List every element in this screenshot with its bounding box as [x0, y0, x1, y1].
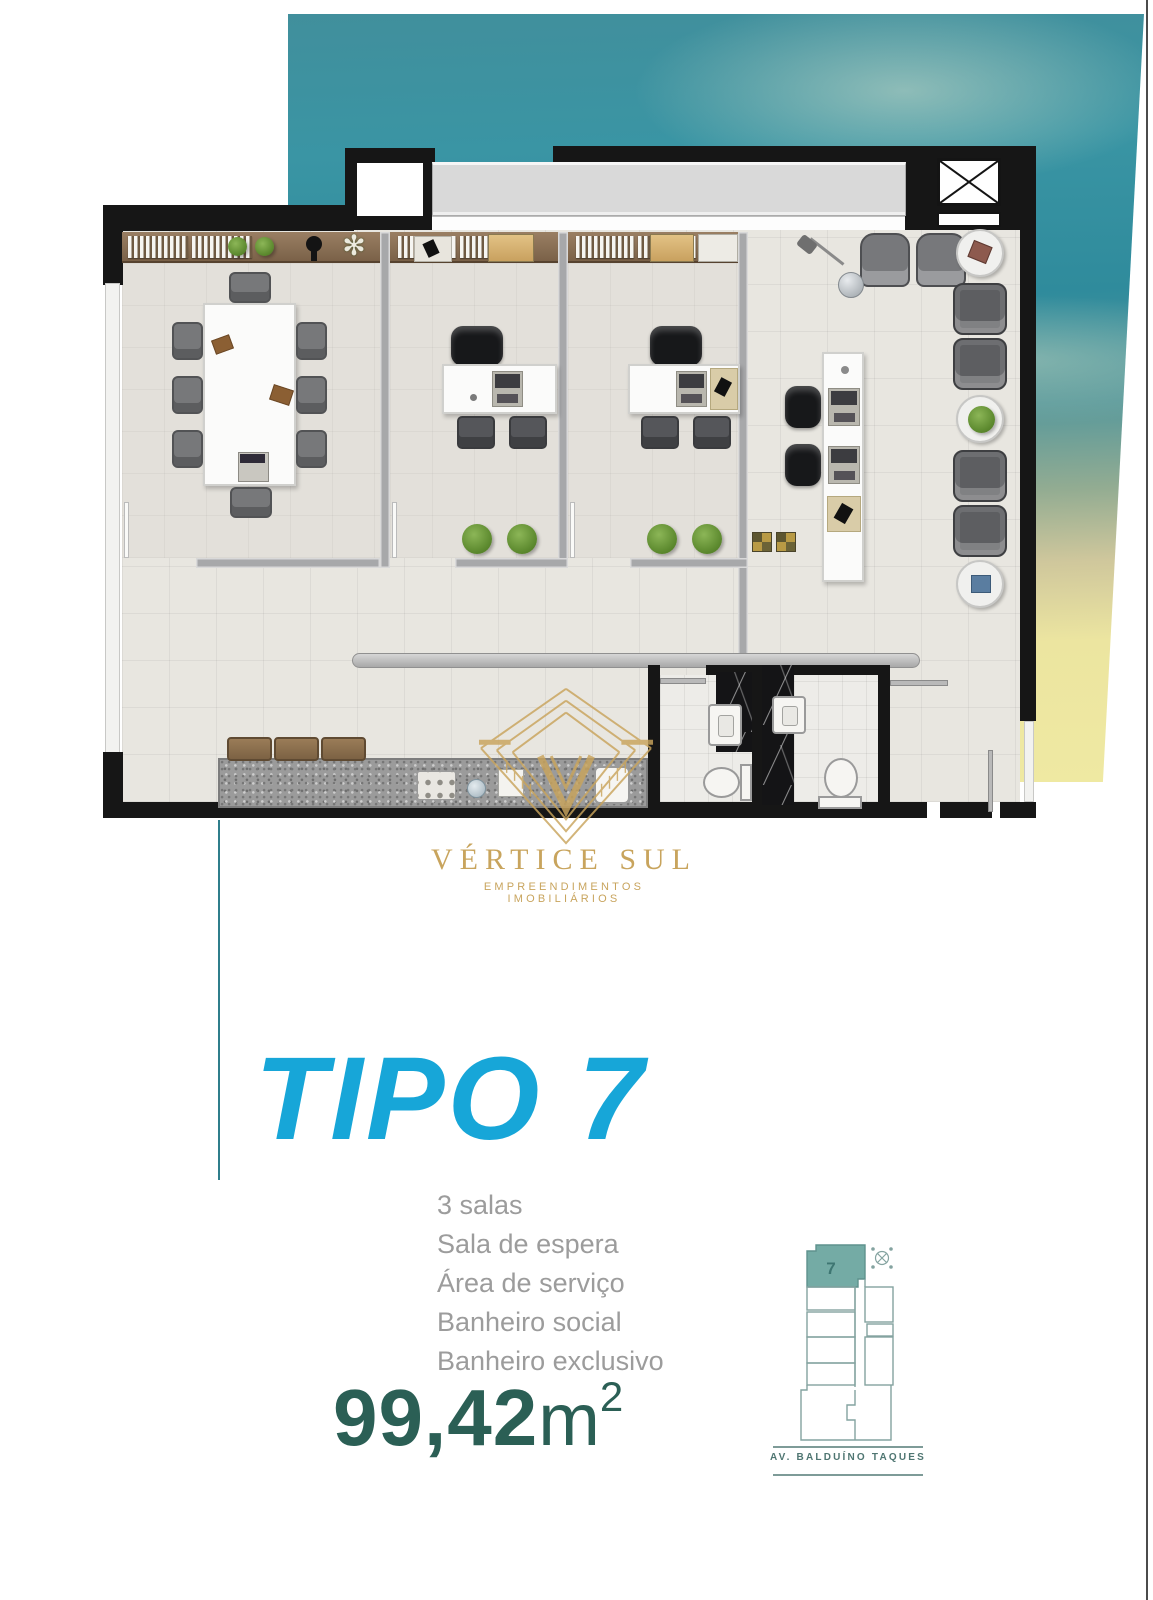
street-line: [773, 1474, 923, 1476]
flyer-page: ✻: [0, 0, 1153, 1600]
street-label: AV. BALDUÍNO TAQUES: [763, 1452, 933, 1463]
feature-item: Sala de espera: [437, 1225, 664, 1264]
street-line: [773, 1446, 923, 1448]
area-exponent: 2: [600, 1373, 623, 1421]
feature-item: Área de serviço: [437, 1264, 664, 1303]
unit-area: 99,42m2: [333, 1372, 623, 1464]
unit-number-label: 7: [826, 1259, 835, 1278]
accent-divider-line: [218, 820, 220, 1180]
unit-7-highlight: [807, 1245, 865, 1287]
logo-name: VÉRTICE SUL: [428, 843, 700, 877]
logo-tagline: EMPREENDIMENTOS IMOBILIÁRIOS: [428, 881, 700, 905]
area-unit: m: [538, 1377, 600, 1462]
building-key-plan: 7: [768, 1238, 908, 1444]
feature-item: 3 salas: [437, 1186, 664, 1225]
vertice-sul-logo-icon: [477, 686, 655, 846]
feature-list: 3 salas Sala de espera Área de serviço B…: [437, 1186, 664, 1381]
feature-item: Banheiro social: [437, 1303, 664, 1342]
compass-icon: [872, 1248, 892, 1268]
unit-title: TIPO 7: [255, 1040, 647, 1158]
area-value: 99,42: [333, 1372, 538, 1464]
